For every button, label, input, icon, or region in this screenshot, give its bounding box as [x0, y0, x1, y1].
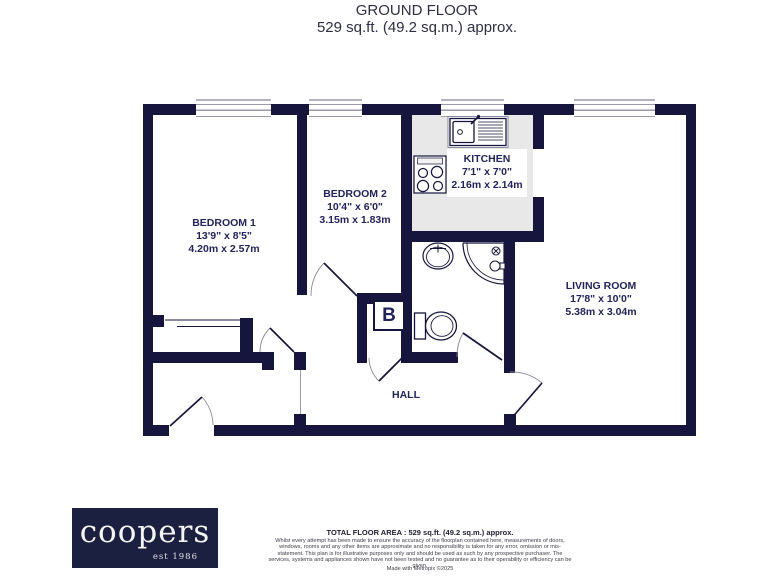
- fixtures-layer: [0, 0, 768, 576]
- room-size-imperial: 17'8" x 10'0": [565, 293, 636, 306]
- coopers-logo: coopers est 1986: [72, 508, 218, 568]
- wall-segment: [153, 352, 263, 363]
- washbasin-icon: [423, 243, 453, 269]
- boiler-label: B: [373, 300, 405, 331]
- disclaimer: Whilst every attempt has been made to en…: [268, 538, 572, 569]
- room-label-kitchen: KITCHEN 7'1" x 7'0" 2.16m x 2.14m: [451, 153, 522, 192]
- window: [196, 104, 271, 117]
- wardrobe-wall-stub: [153, 315, 164, 327]
- wardrobe-icon: [165, 320, 243, 327]
- room-label-living-room: LIVING ROOM 17'8" x 10'0" 5.38m x 3.04m: [565, 280, 636, 319]
- window: [441, 104, 504, 117]
- wardrobe-wall-stub: [240, 318, 253, 352]
- wall-segment: [297, 115, 307, 295]
- logo-est: est 1986: [153, 552, 198, 562]
- door-swing: [170, 263, 542, 426]
- wall-segment: [412, 352, 458, 363]
- wall-segment: [686, 104, 696, 436]
- plan-title: GROUND FLOOR: [356, 2, 479, 19]
- room-size-imperial: 13'9" x 8'5": [188, 230, 259, 243]
- wall-segment: [504, 414, 516, 425]
- room-size-metric: 3.15m x 1.83m: [319, 214, 390, 227]
- room-name: LIVING ROOM: [565, 280, 636, 293]
- room-size-metric: 4.20m x 2.57m: [188, 243, 259, 256]
- room-name: BEDROOM 2: [319, 188, 390, 201]
- plan-area-subtitle: 529 sq.ft. (49.2 sq.m.) approx.: [317, 19, 517, 36]
- floorplan-page: { "title": { "line1": "GROUND FLOOR", "l…: [0, 0, 768, 576]
- room-label-hall: HALL: [392, 389, 420, 402]
- window-sill: [441, 99, 504, 101]
- wall-segment: [143, 425, 169, 436]
- shower-icon: [463, 243, 505, 284]
- room-name: HALL: [392, 389, 420, 402]
- wall-segment: [262, 352, 274, 370]
- wall-segment: [401, 231, 544, 242]
- room-size-metric: 2.16m x 2.14m: [451, 179, 522, 192]
- room-size-imperial: 10'4" x 6'0": [319, 201, 390, 214]
- logo-name: coopers: [72, 514, 218, 550]
- metropix-credit: Made with Metropix ©2025: [387, 566, 454, 572]
- wall-segment: [294, 414, 306, 426]
- wall-segment: [533, 104, 544, 149]
- archway-opening: [300, 370, 301, 414]
- window: [309, 104, 362, 117]
- toilet-icon: [415, 312, 457, 340]
- wall-segment: [504, 242, 515, 373]
- window-sill: [574, 99, 655, 101]
- window-sill: [196, 99, 271, 101]
- wall-segment: [294, 352, 306, 370]
- wall-segment: [357, 293, 367, 363]
- window: [574, 104, 655, 117]
- wall-segment: [214, 425, 696, 436]
- room-name: BEDROOM 1: [188, 217, 259, 230]
- room-name: KITCHEN: [451, 153, 522, 166]
- room-size-imperial: 7'1" x 7'0": [451, 166, 522, 179]
- room-label-bedroom-1: BEDROOM 1 13'9" x 8'5" 4.20m x 2.57m: [188, 217, 259, 256]
- wall-segment: [143, 104, 153, 436]
- window-sill: [309, 99, 362, 101]
- total-floor-area: TOTAL FLOOR AREA : 529 sq.ft. (49.2 sq.m…: [327, 528, 514, 537]
- room-size-metric: 5.38m x 3.04m: [565, 306, 636, 319]
- room-label-bedroom-2: BEDROOM 2 10'4" x 6'0" 3.15m x 1.83m: [319, 188, 390, 227]
